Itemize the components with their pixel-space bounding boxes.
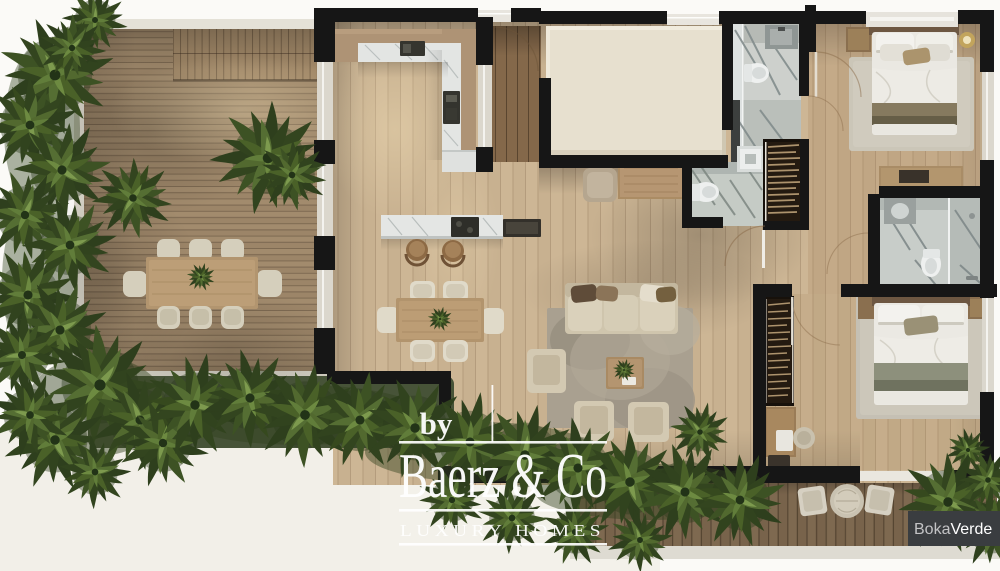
svg-text:Baerz & Co: Baerz & Co: [399, 440, 607, 511]
svg-text:by: by: [420, 406, 453, 441]
svg-text:LUXURY HOMES: LUXURY HOMES: [400, 521, 605, 540]
svg-text:BokaVerde: BokaVerde: [914, 521, 992, 538]
